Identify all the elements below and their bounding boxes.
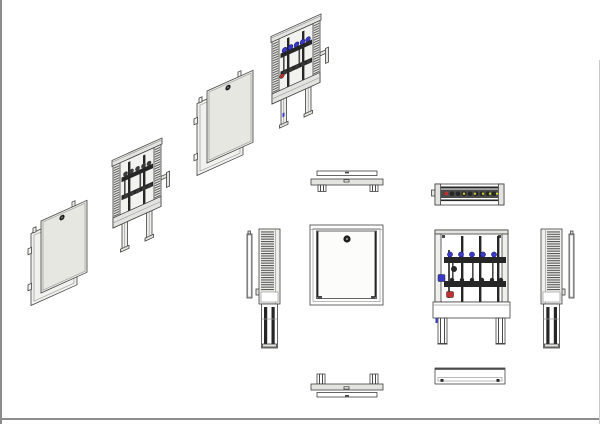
rail-notch bbox=[344, 387, 349, 389]
frame-edge bbox=[441, 200, 498, 202]
rail-notch bbox=[345, 172, 349, 174]
mounting-rail bbox=[479, 236, 481, 302]
panel-top-edge bbox=[435, 368, 505, 370]
side-rail-right bbox=[502, 234, 508, 302]
top-view-manifold bbox=[432, 184, 505, 205]
front-view-closed bbox=[310, 225, 383, 305]
cabinet-with-manifold bbox=[112, 135, 170, 256]
foot-mark-left bbox=[318, 296, 322, 299]
frame-edge bbox=[441, 187, 498, 189]
side-flange-right bbox=[499, 184, 505, 205]
door-panel bbox=[28, 195, 87, 307]
flow-valve-cap bbox=[447, 252, 452, 257]
manifold-bar-top bbox=[444, 257, 506, 263]
door-knob-center bbox=[346, 238, 348, 240]
foot-right bbox=[370, 185, 378, 192]
valve-dot-yellow bbox=[463, 193, 465, 195]
cabinet-side-louvered bbox=[256, 229, 280, 348]
iso-view-cabinet-manifold-mono bbox=[112, 135, 170, 256]
iso-view-door-cover bbox=[194, 65, 253, 177]
flow-valve-cap bbox=[469, 252, 474, 257]
valve-dot-yellow bbox=[474, 193, 476, 195]
bottom-view-panel bbox=[435, 368, 505, 384]
iso-view-door-front-panel bbox=[28, 195, 87, 307]
rail-notch bbox=[345, 395, 349, 397]
fastener-mark bbox=[497, 379, 500, 382]
side-flange-left bbox=[435, 184, 441, 205]
valve-dot-yellow bbox=[482, 193, 484, 195]
rail-notch bbox=[344, 180, 349, 182]
pipe-marker-blue bbox=[436, 318, 438, 323]
flow-valve-cap bbox=[480, 252, 485, 257]
fastener-mark bbox=[441, 379, 444, 382]
mounting-rail bbox=[461, 236, 463, 302]
ball-valve-red bbox=[447, 292, 454, 298]
corner-bracket bbox=[442, 235, 445, 238]
leg-left bbox=[438, 318, 448, 345]
cabinet-side-louvered bbox=[541, 229, 565, 348]
flow-valve-cap bbox=[491, 252, 496, 257]
foot-right bbox=[370, 374, 378, 384]
side-view-left bbox=[247, 229, 280, 348]
leg-right bbox=[496, 318, 506, 345]
top-view-frame bbox=[311, 171, 383, 192]
manifold-bar-bottom bbox=[444, 281, 506, 287]
valve-dot-yellow bbox=[489, 193, 491, 195]
side-view-right bbox=[541, 229, 574, 348]
foot-mark-right bbox=[371, 296, 375, 299]
technical-drawing-canvas bbox=[0, 0, 600, 424]
mounting-rail bbox=[497, 236, 499, 302]
valve-red-top bbox=[445, 192, 449, 196]
pump-body bbox=[451, 266, 457, 272]
door-edge-bar bbox=[247, 231, 252, 298]
cabinet-with-manifold bbox=[271, 11, 329, 132]
valve-dot-yellow bbox=[496, 193, 498, 195]
page-border-left bbox=[0, 0, 2, 424]
door-panel bbox=[194, 65, 253, 177]
iso-view-cabinet-manifold-colored bbox=[271, 11, 329, 132]
page-border-bottom bbox=[0, 418, 600, 420]
flow-valve-cap bbox=[458, 252, 463, 257]
panel-outline bbox=[435, 368, 505, 384]
bottom-view-frame bbox=[311, 374, 383, 397]
foot-left bbox=[317, 374, 325, 384]
top-rail bbox=[435, 230, 508, 234]
side-rail-left bbox=[435, 234, 441, 302]
foot-left bbox=[318, 185, 326, 192]
door-edge-bar bbox=[569, 231, 574, 298]
bottom-rail-box bbox=[433, 302, 510, 318]
ball-valve-blue bbox=[438, 275, 445, 282]
drawing-page bbox=[0, 0, 600, 424]
front-view-manifold bbox=[433, 230, 510, 345]
